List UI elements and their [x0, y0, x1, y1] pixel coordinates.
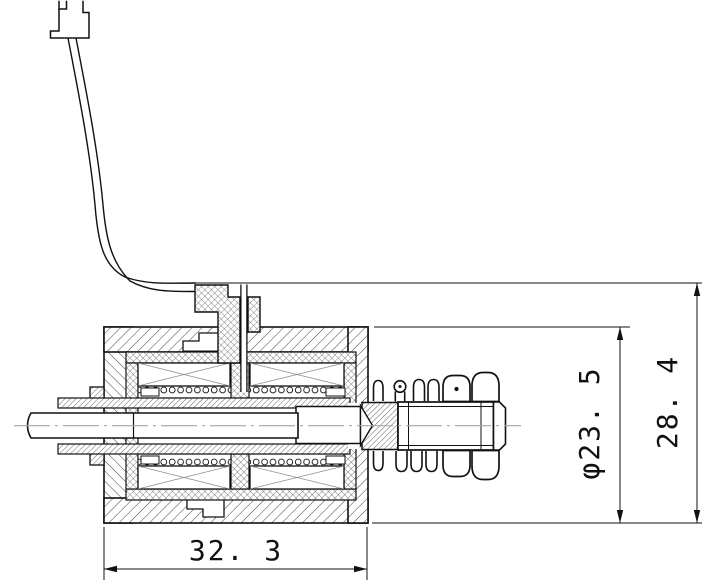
hex-flat [472, 451, 499, 480]
dimension-label-width: 32. 3 [189, 534, 283, 567]
guide-tube-bottom [58, 444, 350, 454]
spring-coil [411, 451, 422, 472]
dimension-label-height: 28. 4 [651, 355, 684, 449]
spring-coil [396, 451, 407, 472]
cable-gland-right [248, 297, 260, 332]
plunger-sleeve [296, 407, 361, 444]
spacer-block [141, 388, 159, 396]
spring-coil [428, 380, 439, 402]
coil-divider-bottom [231, 454, 249, 489]
spring-coil [426, 451, 437, 472]
spacer-block [326, 388, 345, 396]
port-tube-end [494, 402, 506, 450]
spring-coil [374, 451, 384, 471]
drawing-sheet: 32. 3 φ23. 5 28. 4 [0, 0, 710, 588]
solenoid-cross-section-drawing: 32. 3 φ23. 5 28. 4 [0, 0, 710, 588]
hex-flat [443, 451, 470, 477]
bobbin-flange-bottom [126, 489, 356, 500]
spring-coil [414, 380, 425, 402]
spring-coil [374, 381, 384, 402]
hex-center-dot [454, 387, 458, 391]
hex-flat [472, 373, 499, 402]
dimension-label-diameter: φ23. 5 [573, 366, 606, 479]
spacer-block [141, 456, 159, 464]
housing-bottom-wall [104, 498, 368, 523]
spacer-block [326, 456, 345, 464]
